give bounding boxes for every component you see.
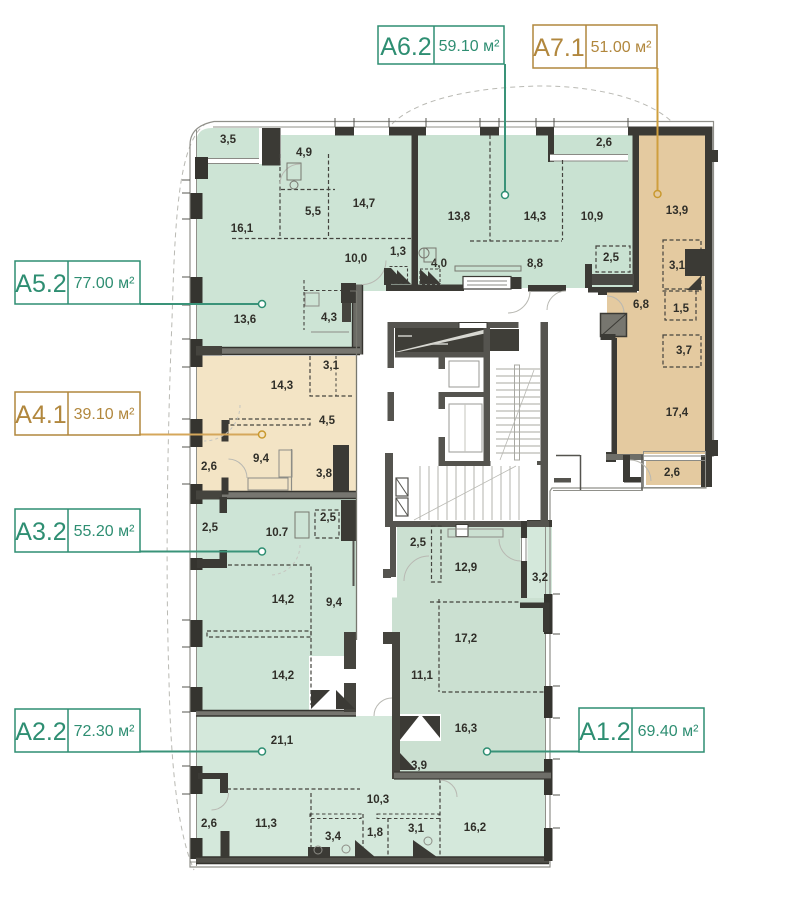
svg-text:16,1: 16,1 bbox=[231, 223, 254, 235]
svg-text:3,1: 3,1 bbox=[669, 260, 686, 272]
svg-text:3,7: 3,7 bbox=[676, 345, 692, 357]
svg-text:12,9: 12,9 bbox=[455, 562, 477, 574]
svg-text:14,2: 14,2 bbox=[272, 594, 294, 606]
svg-text:10,3: 10,3 bbox=[367, 794, 389, 806]
svg-text:13,8: 13,8 bbox=[448, 211, 471, 223]
svg-text:10,9: 10,9 bbox=[581, 211, 603, 223]
svg-text:4,3: 4,3 bbox=[321, 312, 337, 324]
svg-text:3,8: 3,8 bbox=[316, 468, 333, 480]
svg-text:77.00 м²: 77.00 м² bbox=[74, 275, 135, 292]
svg-text:16,3: 16,3 bbox=[455, 723, 477, 735]
svg-text:55.20 м²: 55.20 м² bbox=[74, 523, 135, 540]
svg-text:51.00 м²: 51.00 м² bbox=[591, 39, 652, 56]
svg-text:А4.1: А4.1 bbox=[15, 401, 66, 429]
svg-text:8,8: 8,8 bbox=[527, 258, 544, 270]
svg-text:3,9: 3,9 bbox=[411, 760, 427, 772]
svg-text:2,5: 2,5 bbox=[603, 252, 620, 264]
svg-text:5,5: 5,5 bbox=[305, 206, 322, 218]
svg-text:3,1: 3,1 bbox=[408, 823, 425, 835]
svg-text:1,5: 1,5 bbox=[673, 303, 690, 315]
svg-text:4,9: 4,9 bbox=[296, 147, 312, 159]
svg-text:2,5: 2,5 bbox=[320, 512, 337, 524]
svg-text:3,1: 3,1 bbox=[323, 360, 340, 372]
svg-text:11,1: 11,1 bbox=[411, 670, 433, 682]
svg-text:2,6: 2,6 bbox=[201, 461, 217, 473]
svg-text:13,9: 13,9 bbox=[666, 205, 688, 217]
svg-text:6,8: 6,8 bbox=[633, 299, 650, 311]
svg-text:10,0: 10,0 bbox=[345, 253, 367, 265]
svg-text:11,3: 11,3 bbox=[255, 818, 277, 830]
svg-text:2,6: 2,6 bbox=[664, 467, 680, 479]
svg-text:14,7: 14,7 bbox=[353, 198, 375, 210]
svg-text:1,8: 1,8 bbox=[367, 827, 384, 839]
svg-text:А1.2: А1.2 bbox=[579, 718, 630, 746]
svg-text:4,5: 4,5 bbox=[319, 415, 336, 427]
svg-text:9,4: 9,4 bbox=[326, 597, 343, 609]
svg-text:14,2: 14,2 bbox=[272, 670, 294, 682]
svg-text:16,2: 16,2 bbox=[464, 822, 486, 834]
svg-text:9,4: 9,4 bbox=[253, 453, 270, 465]
svg-text:69.40 м²: 69.40 м² bbox=[638, 723, 699, 740]
svg-text:3,5: 3,5 bbox=[220, 134, 237, 146]
svg-text:21,1: 21,1 bbox=[271, 735, 294, 747]
svg-text:13,6: 13,6 bbox=[234, 314, 256, 326]
svg-text:17,2: 17,2 bbox=[455, 633, 477, 645]
svg-text:А7.1: А7.1 bbox=[533, 34, 584, 62]
svg-text:10.7: 10.7 bbox=[266, 527, 288, 539]
svg-text:2,6: 2,6 bbox=[596, 137, 612, 149]
svg-text:17,4: 17,4 bbox=[666, 407, 689, 419]
svg-text:39.10 м²: 39.10 м² bbox=[74, 406, 135, 423]
svg-text:2,6: 2,6 bbox=[201, 818, 217, 830]
svg-text:1,3: 1,3 bbox=[390, 246, 406, 258]
svg-text:14,3: 14,3 bbox=[524, 211, 546, 223]
svg-text:3,4: 3,4 bbox=[325, 831, 342, 843]
svg-text:3,2: 3,2 bbox=[532, 572, 548, 584]
svg-text:14,3: 14,3 bbox=[271, 380, 293, 392]
svg-text:4,0: 4,0 bbox=[431, 258, 447, 270]
svg-text:2,5: 2,5 bbox=[202, 522, 219, 534]
svg-text:59.10 м²: 59.10 м² bbox=[439, 38, 500, 55]
svg-text:А6.2: А6.2 bbox=[380, 33, 431, 61]
svg-text:А3.2: А3.2 bbox=[15, 518, 66, 546]
svg-text:2,5: 2,5 bbox=[410, 537, 427, 549]
svg-text:72.30 м²: 72.30 м² bbox=[74, 723, 135, 740]
svg-text:А5.2: А5.2 bbox=[15, 270, 66, 298]
svg-text:А2.2: А2.2 bbox=[15, 718, 66, 746]
